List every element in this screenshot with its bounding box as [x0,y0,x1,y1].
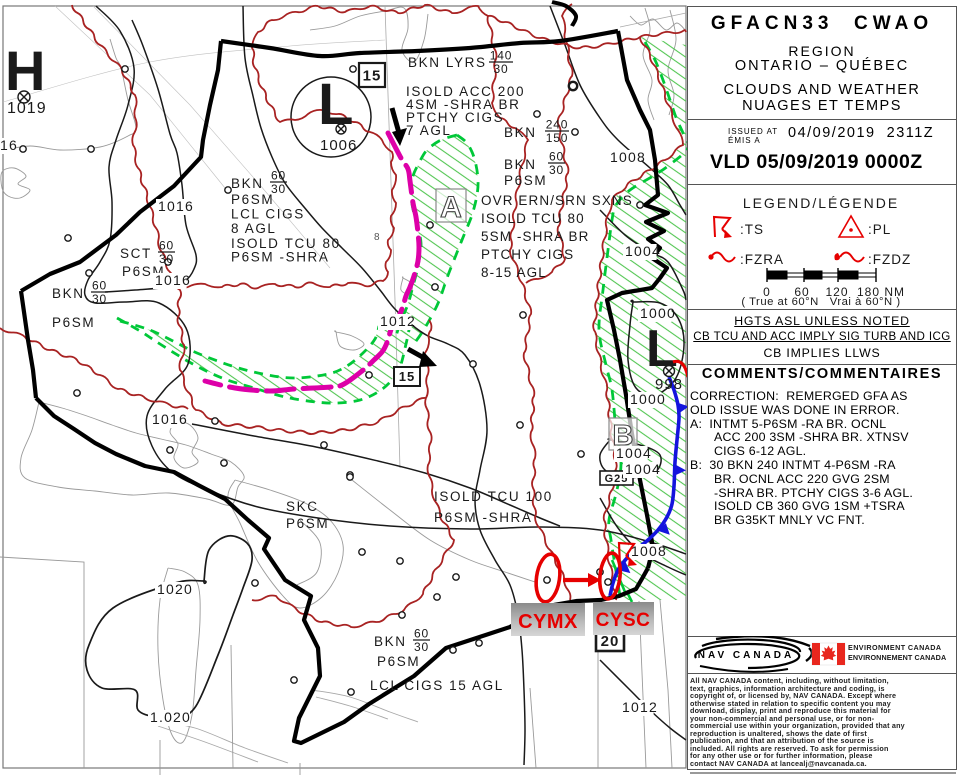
svg-text:PTCHY CIGS: PTCHY CIGS [481,247,574,262]
svg-text::TS: :TS [740,222,764,237]
svg-text:1016: 1016 [158,198,194,214]
svg-text:A: A [440,191,462,224]
svg-text:SCT: SCT [120,246,152,261]
svg-text:ENVIRONMENT CANADA: ENVIRONMENT CANADA [848,643,941,652]
svg-text:60: 60 [271,169,286,183]
svg-text:ENVIRONNEMENT CANADA: ENVIRONNEMENT CANADA [848,653,946,662]
svg-text:P6SM: P6SM [377,654,420,669]
svg-text:LCL CIGS 15 AGL: LCL CIGS 15 AGL [370,678,504,693]
svg-text:P6SM -SHRA: P6SM -SHRA [434,510,533,525]
svg-text:( True at 60°N Vrai à 60°N ): ( True at 60°N Vrai à 60°N ) [741,296,900,308]
svg-text:P6SM -SHRA: P6SM -SHRA [231,250,330,265]
svg-text:1004: 1004 [625,243,661,259]
svg-text:60: 60 [159,239,174,253]
svg-text:1019: 1019 [7,100,47,117]
svg-text::FZDZ: :FZDZ [868,252,911,267]
svg-text:NAV CANADA: NAV CANADA [698,650,794,661]
svg-text:30: 30 [549,163,564,177]
svg-text:BKN: BKN [52,286,85,301]
svg-text:SKC: SKC [286,499,319,514]
svg-text:BKN: BKN [231,176,264,191]
svg-text:30: 30 [414,640,429,654]
svg-text:P6SM: P6SM [504,173,547,188]
svg-text:1008: 1008 [631,543,667,559]
svg-text:OVR ERN/SRN SXNS: OVR ERN/SRN SXNS [481,193,633,208]
svg-text:BKN: BKN [504,157,537,172]
svg-text:15: 15 [363,67,382,84]
svg-text:1016: 1016 [155,272,191,288]
svg-text:ISOLD TCU 80: ISOLD TCU 80 [481,211,585,226]
svg-text:LEGEND/LÉGENDE: LEGEND/LÉGENDE [743,195,899,211]
svg-text:240: 240 [546,118,568,132]
svg-text:LCL CIGS: LCL CIGS [231,207,305,222]
svg-text:1016: 1016 [152,411,188,427]
svg-text:CYMX: CYMX [518,611,578,633]
svg-text:8 AGL: 8 AGL [231,221,277,236]
svg-text:8-15 AGL: 8-15 AGL [481,265,547,280]
svg-text:60: 60 [549,150,564,164]
svg-text:8: 8 [374,232,380,243]
svg-text:30: 30 [92,292,107,306]
svg-text:CYSC: CYSC [596,610,651,631]
svg-text::PL: :PL [868,222,891,237]
svg-text:1004: 1004 [625,461,661,477]
svg-text:P6SM: P6SM [52,315,95,330]
svg-text:15: 15 [399,369,415,384]
svg-text:20: 20 [601,633,620,650]
svg-text::FZRA: :FZRA [740,252,784,267]
svg-text:1020: 1020 [157,581,193,597]
svg-text:60: 60 [92,279,107,293]
svg-text:5SM -SHRA BR: 5SM -SHRA BR [481,229,589,244]
svg-text:16: 16 [0,137,18,153]
svg-text:BKN LYRS: BKN LYRS [408,55,487,70]
svg-text:P6SM: P6SM [231,192,274,207]
svg-text:1.020: 1.020 [150,709,191,725]
svg-text:1000: 1000 [640,305,676,321]
svg-text:1012: 1012 [380,313,416,329]
svg-text:30: 30 [494,62,509,76]
svg-text:BKN: BKN [504,125,537,140]
svg-text:ISOLD TCU 100: ISOLD TCU 100 [434,489,553,504]
svg-text:P6SM: P6SM [286,516,329,531]
svg-text:140: 140 [490,49,512,63]
svg-text:1006: 1006 [320,137,357,154]
svg-text:BKN: BKN [374,634,407,649]
svg-text:7 AGL: 7 AGL [406,123,452,138]
svg-text:1008: 1008 [610,149,646,165]
svg-text:1004: 1004 [616,445,652,461]
svg-text:1012: 1012 [622,699,658,715]
svg-text:150: 150 [546,131,568,145]
svg-text:1000: 1000 [630,391,666,407]
svg-text:60: 60 [414,627,429,641]
